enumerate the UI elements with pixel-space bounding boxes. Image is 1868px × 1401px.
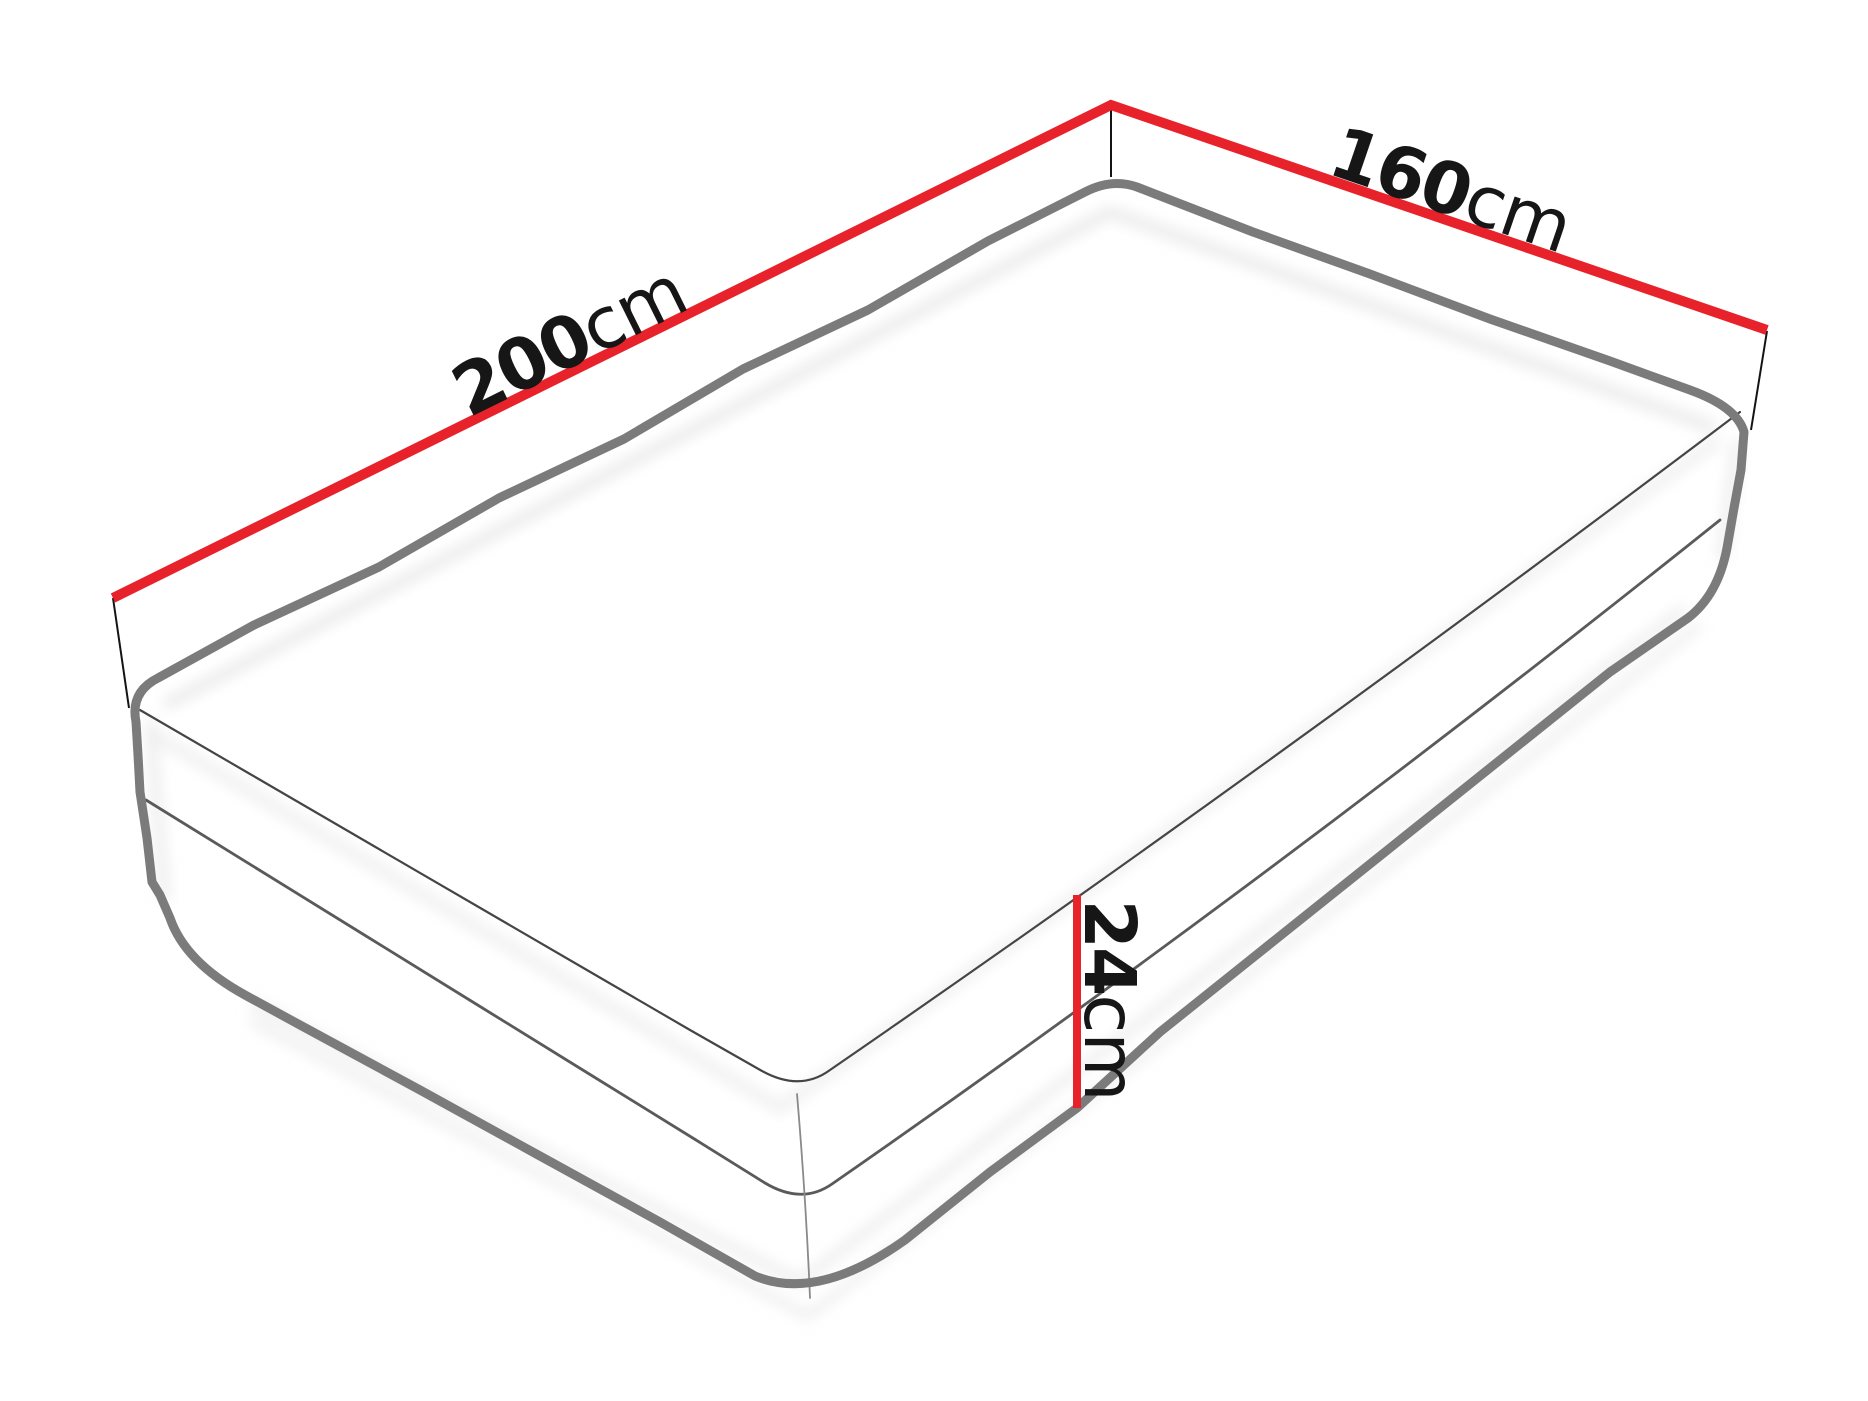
width-label: 160cm bbox=[1320, 110, 1582, 269]
corner-seam-line bbox=[797, 1094, 810, 1298]
length-label: 200cm bbox=[439, 249, 698, 433]
height-value: 24 bbox=[1068, 899, 1151, 994]
height-unit: cm bbox=[1068, 994, 1151, 1100]
mattress-diagram-svg: 200cm 160cm 24cm bbox=[0, 0, 1868, 1401]
height-label: 24cm bbox=[1068, 899, 1151, 1100]
width-value: 160 bbox=[1320, 110, 1481, 235]
extension-line-left bbox=[113, 598, 129, 708]
extension-line-right bbox=[1751, 331, 1767, 430]
mattress-diagram: 200cm 160cm 24cm bbox=[0, 0, 1868, 1401]
